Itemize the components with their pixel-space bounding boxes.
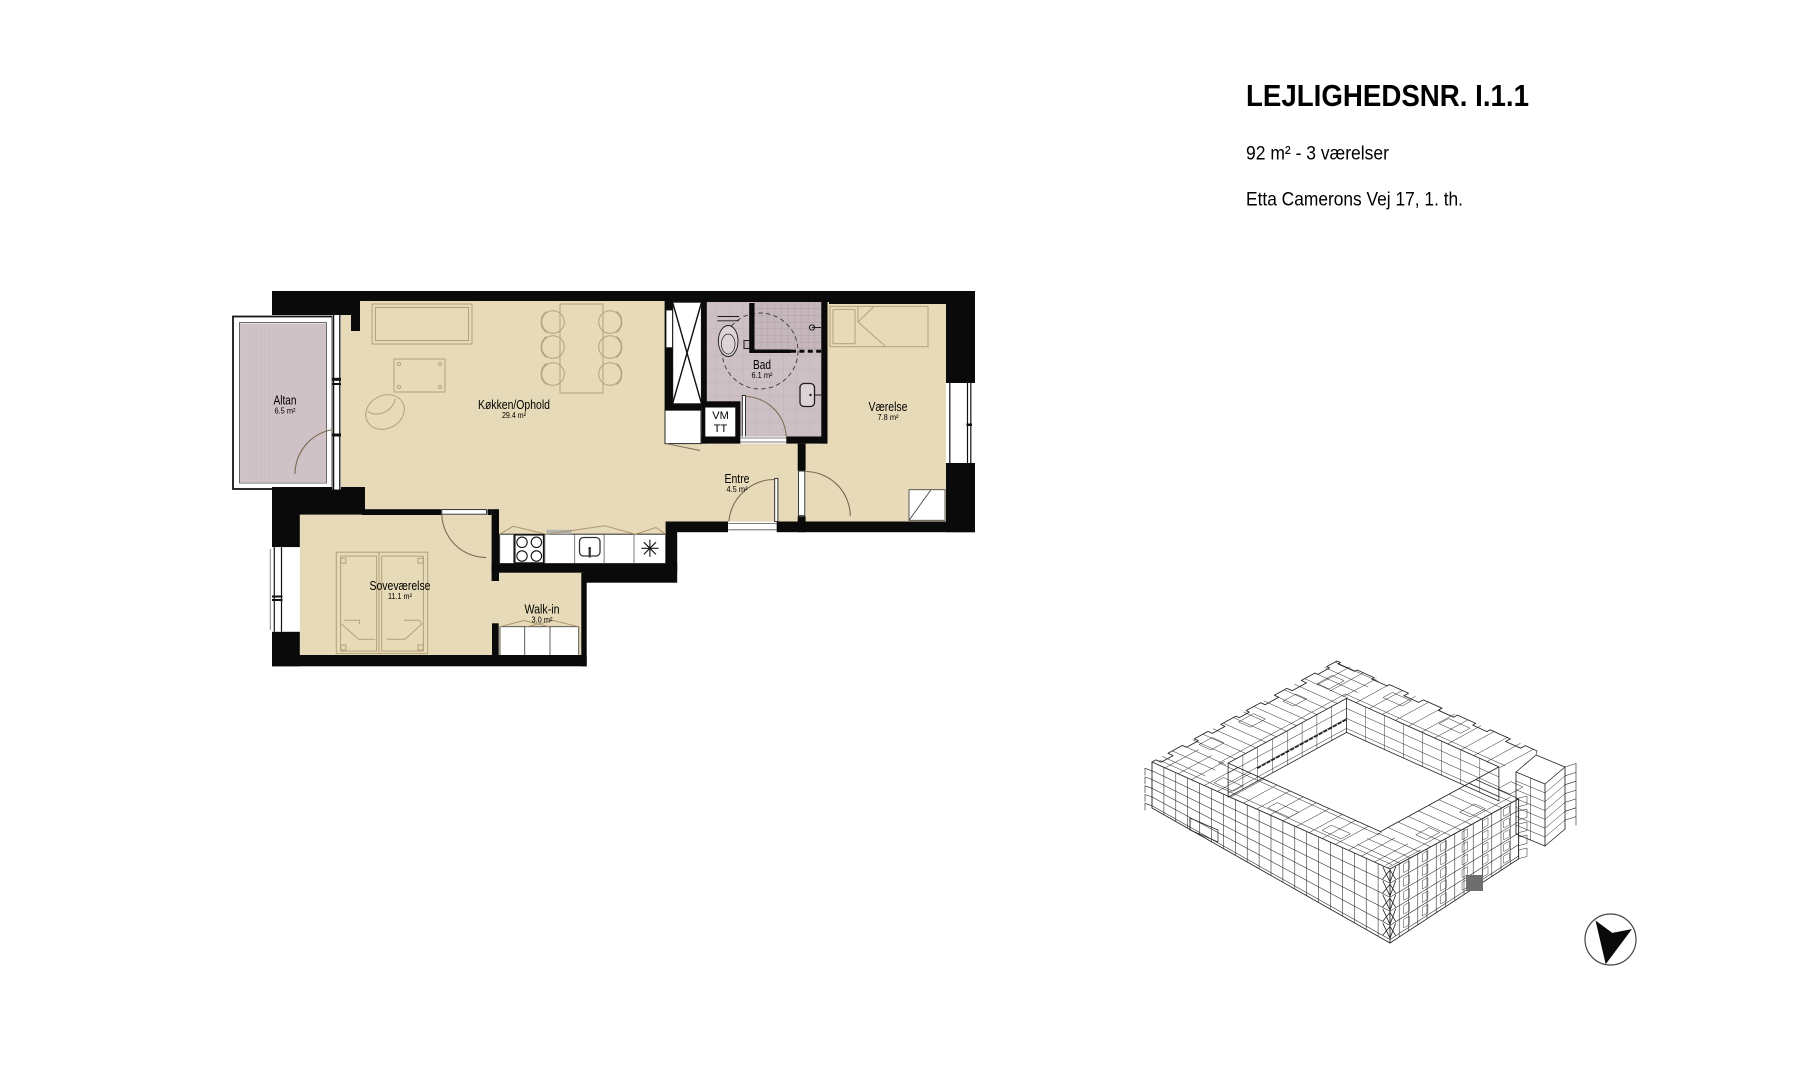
- svg-text:6.5 m²: 6.5 m²: [275, 407, 296, 416]
- svg-text:TT: TT: [714, 423, 728, 435]
- svg-text:Altan: Altan: [274, 394, 297, 408]
- svg-text:Entre: Entre: [725, 472, 750, 486]
- svg-text:Etta Camerons Vej 17, 1. th.: Etta Camerons Vej 17, 1. th.: [1246, 189, 1463, 211]
- svg-text:Soveværelse: Soveværelse: [370, 579, 431, 593]
- svg-text:3.0 m²: 3.0 m²: [532, 616, 553, 625]
- svg-text:92 m² - 3 værelser: 92 m² - 3 værelser: [1246, 143, 1389, 165]
- svg-text:4.5 m²: 4.5 m²: [727, 485, 748, 494]
- svg-text:7.8 m²: 7.8 m²: [878, 413, 899, 422]
- svg-text:Værelse: Værelse: [869, 400, 908, 414]
- svg-text:Bad: Bad: [753, 358, 771, 372]
- svg-text:29.4 m²: 29.4 m²: [502, 411, 526, 420]
- svg-text:Køkken/Ophold: Køkken/Ophold: [478, 398, 550, 412]
- svg-text:6.1 m²: 6.1 m²: [752, 371, 773, 380]
- svg-text:VM: VM: [712, 410, 729, 422]
- svg-text:LEJLIGHEDSNR. I.1.1: LEJLIGHEDSNR. I.1.1: [1246, 78, 1529, 113]
- svg-text:11.1 m²: 11.1 m²: [388, 592, 412, 601]
- svg-text:Walk-in: Walk-in: [525, 603, 560, 617]
